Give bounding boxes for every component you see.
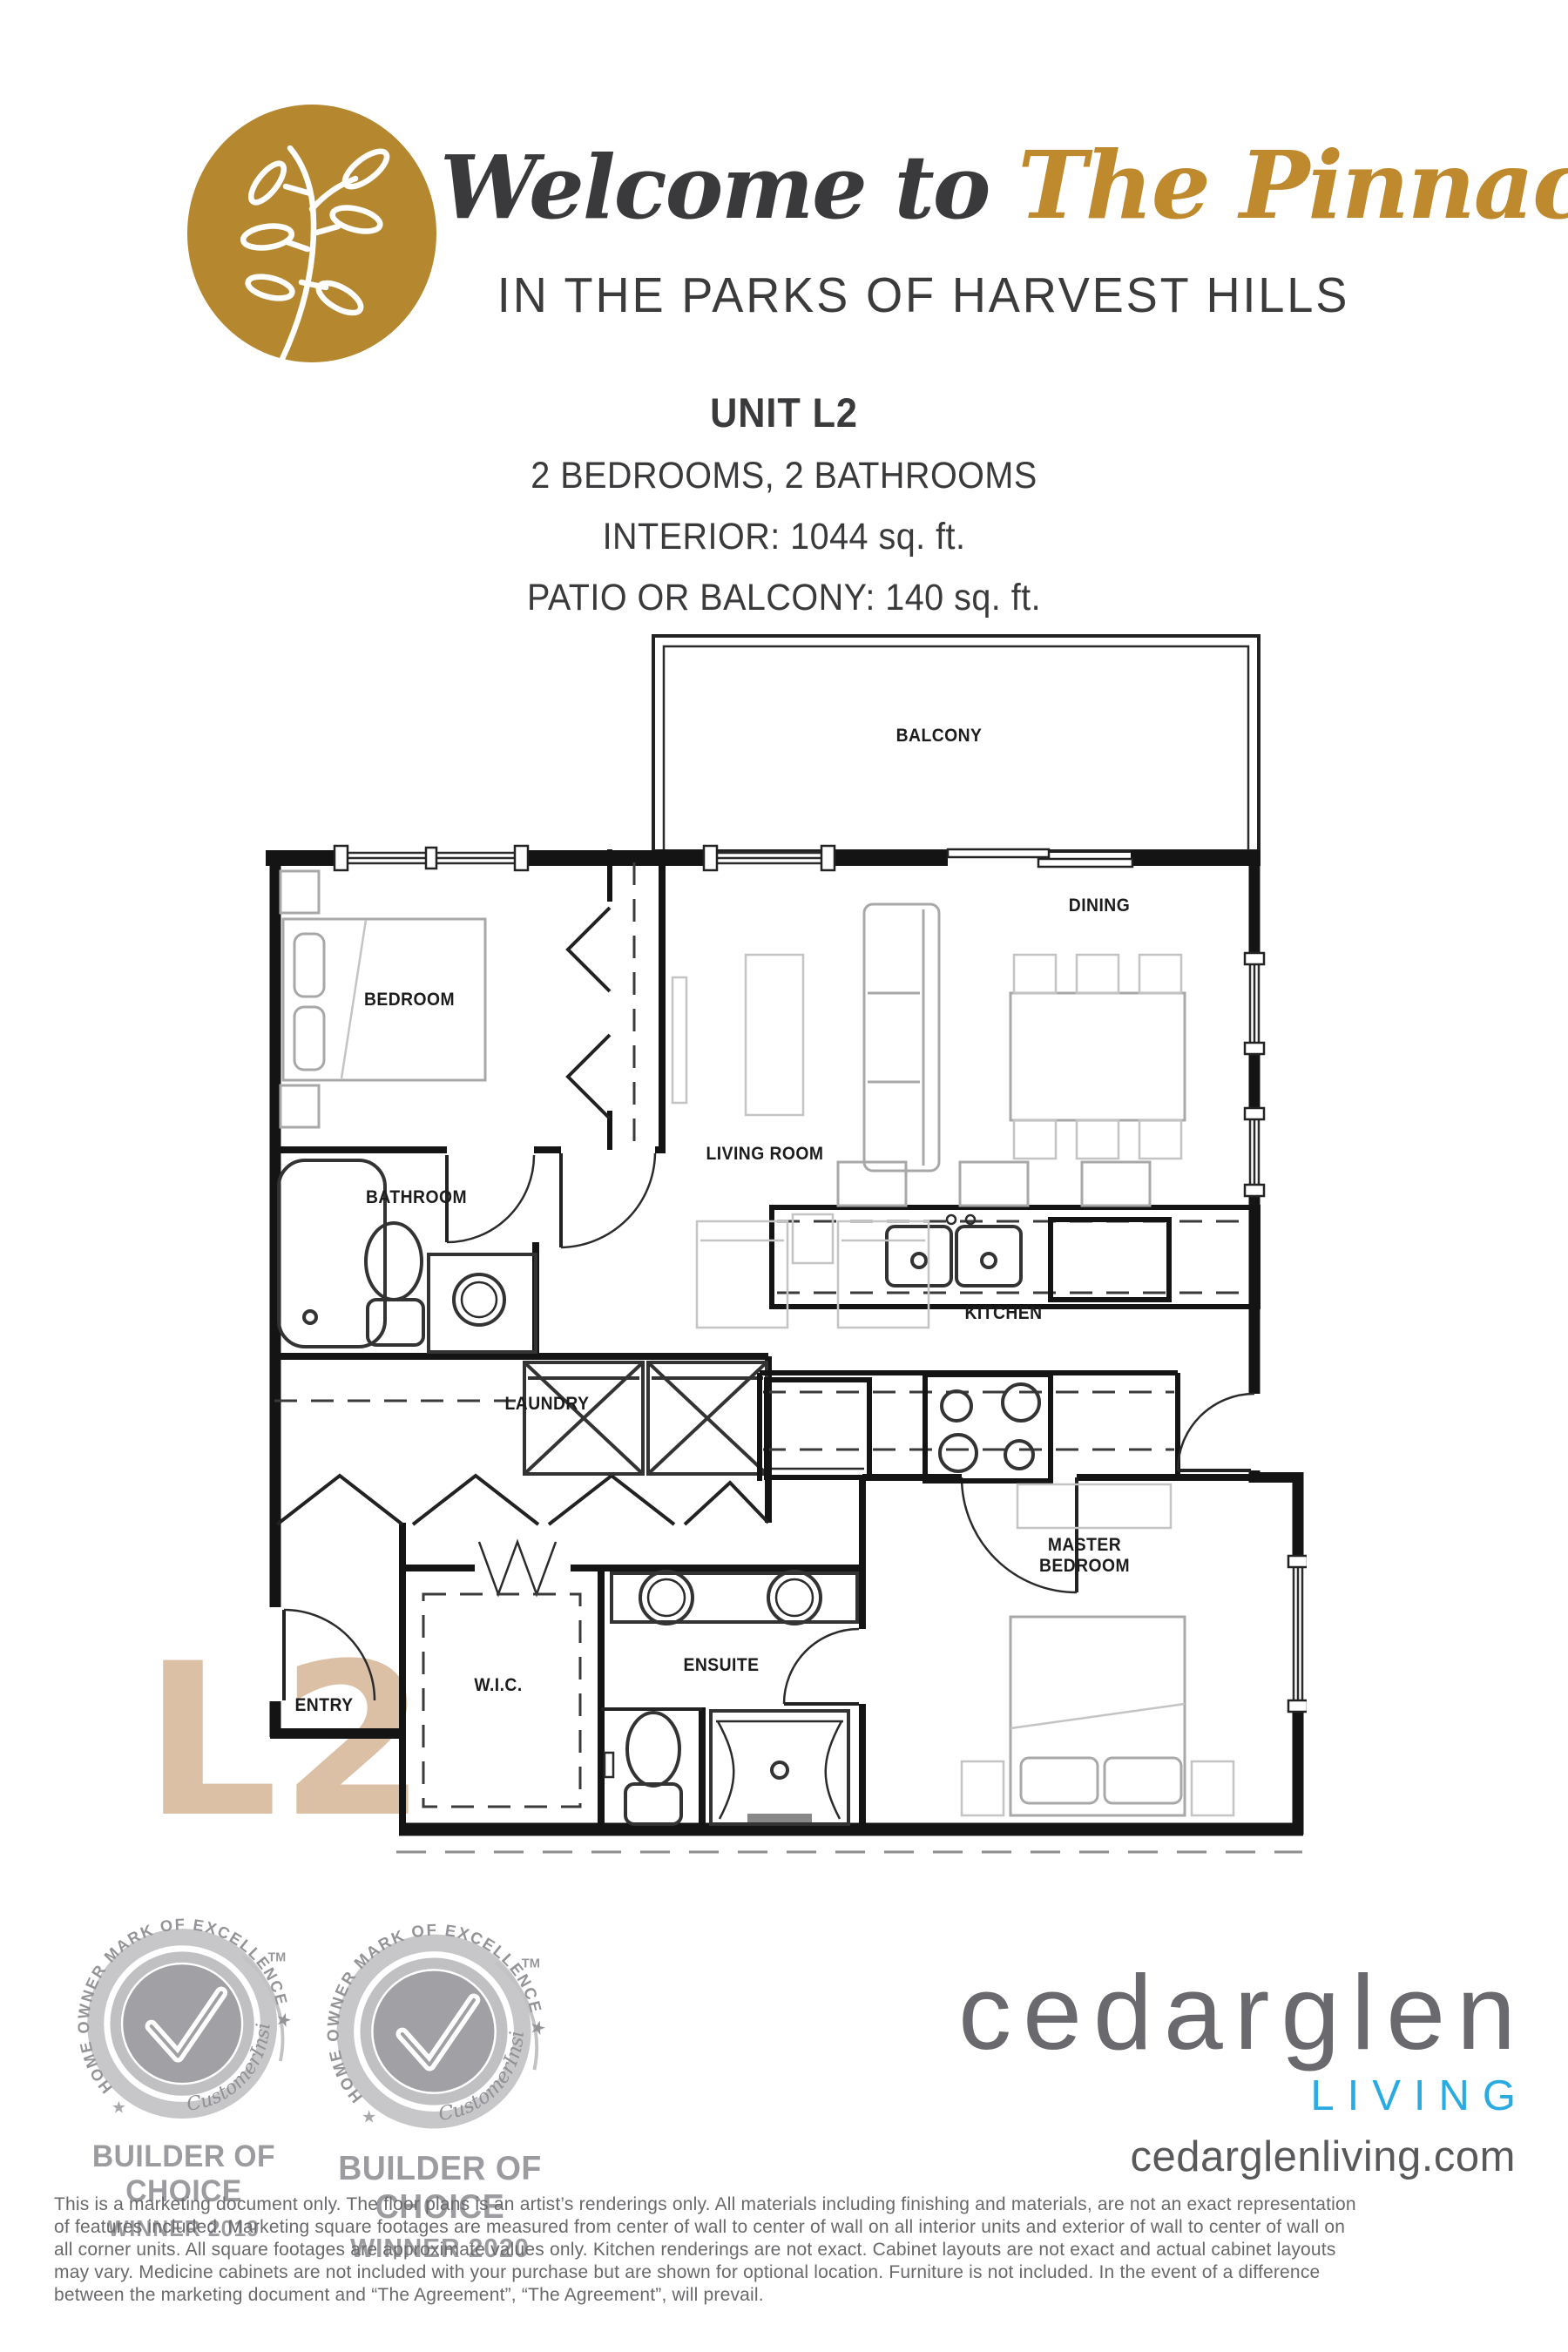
room-label-living-room: LIVING ROOM [706, 1144, 824, 1165]
disclaimer-line: all corner units. All square footages ar… [54, 2239, 1535, 2261]
room-label-kitchen: KITCHEN [964, 1303, 1042, 1324]
room-label-bathroom: BATHROOM [366, 1187, 467, 1208]
marketing-page: Welcome to The Pinnacle IN THE PARKS OF … [0, 0, 1568, 2352]
star-icon: ★ [112, 2099, 126, 2117]
room-labels: BALCONYDININGBEDROOMLIVING ROOMBATHROOMK… [148, 618, 1307, 1864]
disclaimer-line: This is a marketing document only. The f… [54, 2193, 1535, 2216]
builder-of-choice-2019-badge-icon: HOME OWNER MARK OF EXCELLENCE ★ Customer… [71, 1913, 296, 2138]
star-icon: ★ [362, 2108, 377, 2127]
room-label-bedroom: BEDROOM [364, 990, 455, 1010]
brand-name: cedarglen [836, 1957, 1527, 2068]
builder-of-choice-2020-badge-icon: HOME OWNER MARK OF EXCELLENCE ★ Customer… [321, 1918, 551, 2148]
trademark-label: TM [268, 1950, 287, 1964]
disclaimer-line: between the marketing document and “The … [54, 2284, 1535, 2307]
room-label-dining: DINING [1069, 896, 1130, 916]
brand-block: cedarglen LIVING cedarglenliving.com [836, 1957, 1516, 2181]
room-label-ensuite: ENSUITE [684, 1655, 760, 1676]
brand-website-link[interactable]: cedarglenliving.com [836, 2132, 1516, 2181]
brand-tagline: LIVING [836, 2072, 1529, 2120]
disclaimer: This is a marketing document only. The f… [54, 2193, 1535, 2307]
room-label-laundry: LAUNDRY [505, 1394, 590, 1415]
trademark-label: TM [522, 1957, 540, 1971]
room-label-entry: ENTRY [294, 1695, 353, 1716]
room-label-master-bedroom: MASTER BEDROOM [1039, 1535, 1130, 1577]
disclaimer-line: may vary. Medicine cabinets are not incl… [54, 2261, 1535, 2284]
room-label-w-i-c-: W.I.C. [474, 1675, 522, 1696]
room-label-balcony: BALCONY [896, 726, 983, 747]
disclaimer-line: of features included. Marketing square f… [54, 2216, 1535, 2239]
